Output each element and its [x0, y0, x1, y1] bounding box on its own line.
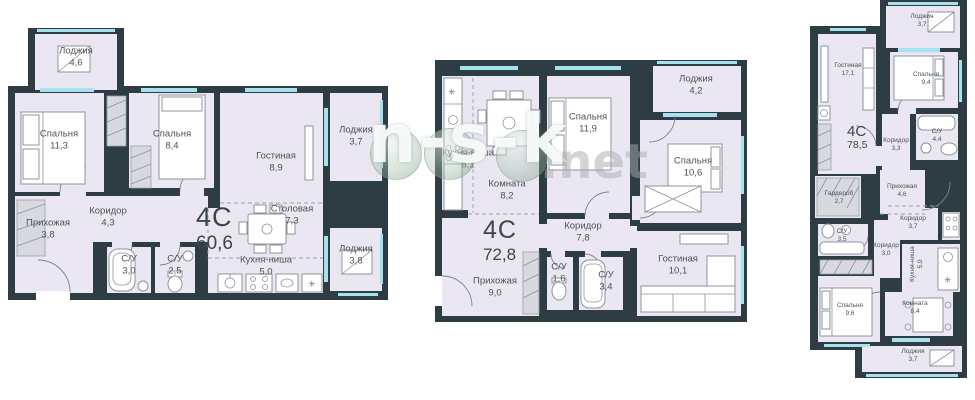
room-label-wc: С/У 2,5	[167, 254, 183, 279]
room-name: Кухня-ниша	[909, 246, 917, 282]
toilet-icon	[822, 224, 834, 238]
room-name: Лоджия	[679, 74, 713, 86]
room-name: Коридор	[883, 137, 909, 145]
floor-plan-middle: ✳	[435, 58, 750, 324]
room-label-wc: С/У 3,5	[837, 228, 848, 244]
radiator-icon	[305, 126, 313, 180]
desk-icon	[680, 234, 728, 244]
radiator-icon	[821, 46, 828, 102]
room-name: С/У	[837, 228, 848, 236]
room-area: 4,3	[89, 218, 127, 230]
room-area: 3,0	[121, 266, 137, 278]
wardrobe-icon	[645, 186, 701, 212]
toilet-icon	[941, 143, 957, 155]
room-label-wc: С/У 3,4	[598, 270, 614, 295]
room-label-hall: Прихожая 4,6	[887, 183, 917, 199]
room-label-hall: Прихожая 3,8	[26, 218, 70, 243]
apartment-type: 4С	[847, 124, 867, 139]
room-area: 7,8	[564, 233, 602, 245]
kitchen-counter-icon: ✳	[938, 248, 958, 290]
apartment-type: 4С	[483, 218, 517, 243]
room-label-bedroom: Спальня 10,6	[674, 156, 712, 181]
room-name: Комната	[902, 300, 927, 308]
fridge-icon: ✳	[302, 274, 322, 292]
room-label-wc: С/У 3,0	[121, 254, 137, 279]
room-label-kitchen: Кухня-ниша 5,0	[909, 246, 925, 282]
room-area: 8,1	[442, 160, 494, 172]
room-label-room: Комната 8,4	[902, 300, 927, 316]
loggia-glazing-icon	[930, 350, 954, 366]
room-label-living: Гостиная 17,1	[834, 62, 861, 78]
room-area: 3,7	[901, 356, 924, 364]
room-label-loggia: Лоджия 3,8	[339, 244, 373, 269]
room-name: Гостиная	[658, 254, 698, 266]
wardrobe-icon	[523, 252, 539, 314]
kitchen-sink-icon	[218, 274, 242, 292]
room-area: 4,4	[932, 136, 943, 144]
room-name: Столовая	[271, 204, 313, 216]
room-area: 17,1	[834, 70, 861, 78]
room-label-living: Гостиная 8,9	[256, 151, 296, 176]
room-label-loggia: Лоджия 4,2	[679, 74, 713, 99]
room-area: 5,0	[917, 246, 925, 282]
room-area: 3,8	[339, 256, 373, 268]
room-label-corridor: Коридор 3,0	[873, 242, 899, 258]
room-label-room: Комната 8,2	[488, 179, 525, 204]
room-label-corridor: Коридор 3,7	[900, 215, 926, 231]
room-area: 1,6	[551, 274, 567, 286]
room-name: С/У	[598, 270, 614, 282]
room-label-loggia: Лоджия 3,7	[901, 348, 924, 364]
floor-plans-canvas: ✳	[0, 0, 975, 400]
room-name: Гостиная	[834, 62, 861, 70]
wardrobe-icon	[818, 124, 831, 170]
room-area: 8,2	[488, 191, 525, 203]
room-area: 9,0	[473, 288, 517, 300]
room-label-hall: Прихожая 9,0	[473, 276, 517, 301]
svg-text:✳: ✳	[448, 87, 456, 97]
room-label-loggia: Лоджия 4,6	[59, 46, 93, 71]
room-area: 7,3	[271, 216, 313, 228]
wardrobe-icon	[131, 146, 151, 188]
room-label-dining: Столовая 7,3	[271, 204, 313, 229]
room-area: 5,0	[240, 267, 292, 279]
room-name: Коридор	[564, 221, 602, 233]
room-label-bedroom: Спальня 8,4	[153, 129, 191, 154]
room-area: 4,2	[679, 86, 713, 98]
room-area: 3,7	[339, 137, 373, 149]
room-area: 9,6	[837, 310, 863, 318]
apartment-type-label: 4С 60,6	[196, 204, 233, 253]
interior-wall-stub	[442, 210, 468, 218]
floor-plan-left: ✳	[8, 28, 388, 300]
room-name: Лоджия	[901, 348, 924, 356]
svg-text:✳: ✳	[308, 279, 316, 289]
room-name: Коридор	[900, 215, 926, 223]
room-label-living: Гостиная 10,1	[658, 254, 698, 279]
kitchen-column-icon: ✳	[444, 78, 462, 210]
room-area: 10,1	[658, 266, 698, 278]
svg-text:✳: ✳	[944, 275, 952, 285]
room-label-corridor: Коридор 7,8	[564, 221, 602, 246]
apartment-type: 4С	[196, 204, 233, 231]
apartment-total-area: 72,8	[483, 246, 517, 263]
dining-table-icon	[478, 91, 540, 155]
room-name: Спальня	[674, 156, 712, 168]
apartment-total-area: 60,6	[196, 234, 233, 253]
room-name: Прихожая	[887, 183, 917, 191]
room-label-loggia: Лоджия 3,7	[339, 125, 373, 150]
washer-icon	[818, 106, 830, 120]
room-area: 3,4	[598, 282, 614, 294]
room-name: Комната	[488, 179, 525, 191]
room-area: 3,7	[900, 223, 926, 231]
room-area: 3,0	[873, 250, 899, 258]
room-area: 3,5	[837, 236, 848, 244]
room-area: 11,3	[40, 141, 78, 153]
room-area: 3,7	[910, 21, 933, 29]
room-area: 11,9	[569, 124, 607, 136]
room-area: 8,4	[153, 141, 191, 153]
room-name: Прихожая	[473, 276, 517, 288]
room-name: Прихожая	[26, 218, 70, 230]
room-area: 4,6	[59, 58, 93, 70]
room-name: С/У	[551, 262, 567, 274]
room-name: Лоджия	[59, 46, 93, 58]
apartment-total-area: 78,5	[847, 140, 867, 151]
room-label-loggia: Лоджия 3,7	[910, 13, 933, 29]
room-area: 2,7	[825, 198, 854, 206]
room-name: Спальня	[913, 71, 939, 79]
room-area: 2,5	[167, 266, 183, 278]
room-area: 9,4	[913, 79, 939, 87]
room-name: Коридор	[873, 242, 899, 250]
apartment-type-label: 4С 78,5	[847, 124, 867, 151]
room-area: 10,6	[674, 168, 712, 180]
room-label-corridor: Коридор 3,3	[883, 137, 909, 153]
room-name: С/У	[167, 254, 183, 266]
room-label-bedroom: Спальня 11,3	[40, 129, 78, 154]
room-name: Кухня-ниша	[240, 255, 292, 267]
room-label-wc: С/У 4,4	[932, 128, 943, 144]
room-name: Спальня	[569, 112, 607, 124]
room-name: Лоджия	[339, 244, 373, 256]
room-name: Лоджия	[339, 125, 373, 137]
room-name: Лоджия	[910, 13, 933, 21]
sink-icon	[183, 251, 193, 261]
room-name: Спальня	[40, 129, 78, 141]
room-name: Кухня-ниша	[442, 148, 494, 160]
room-name: Гардероб	[825, 190, 854, 198]
room-name: С/У	[121, 254, 137, 266]
room-label-wardrobe: Гардероб 2,7	[825, 190, 854, 206]
room-area: 8,4	[902, 308, 927, 316]
wardrobe-icon	[107, 96, 126, 146]
sink-icon	[138, 281, 148, 291]
sofa-icon	[863, 48, 874, 110]
room-area: 8,9	[256, 163, 296, 175]
sink-icon	[921, 143, 931, 153]
room-label-kitchen: Кухня-ниша 5,0	[240, 255, 292, 280]
room-name: Спальня	[837, 302, 863, 310]
room-area: 3,3	[883, 145, 909, 153]
floor-plan-right: ✳ Л	[810, 0, 972, 398]
room-name: Коридор	[89, 206, 127, 218]
room-label-wc: С/У 1,6	[551, 262, 567, 287]
room-label-corridor: Коридор 4,3	[89, 206, 127, 231]
apartment-type-label: 4С 72,8	[483, 218, 517, 263]
stove-icon	[943, 213, 959, 237]
room-name: Спальня	[153, 129, 191, 141]
room-area: 4,6	[887, 191, 917, 199]
bathtub-icon	[820, 242, 864, 254]
room-label-bedroom: Спальня 11,9	[569, 112, 607, 137]
room-name: С/У	[932, 128, 943, 136]
room-label-bedroom: Спальня 9,6	[837, 302, 863, 318]
room-area: 3,8	[26, 230, 70, 242]
room-label-bedroom: Спальня 9,4	[913, 71, 939, 87]
wardrobe-icon	[820, 260, 872, 274]
room-label-kitchen: Кухня-ниша 8,1	[442, 148, 494, 173]
room-name: Гостиная	[256, 151, 296, 163]
